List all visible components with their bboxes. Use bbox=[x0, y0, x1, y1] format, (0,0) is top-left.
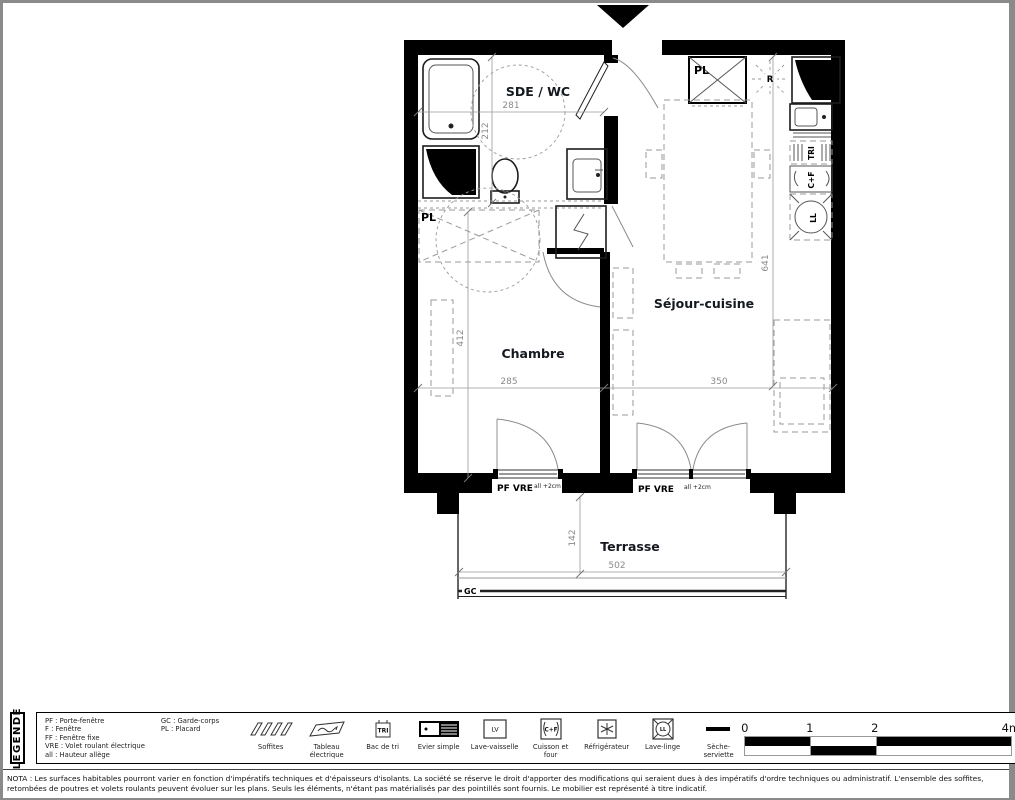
dim-sde-height: 212 bbox=[481, 122, 491, 139]
abbreviation: FF : Fenêtre fixe bbox=[45, 734, 145, 743]
walls bbox=[404, 40, 845, 514]
svg-text:LL: LL bbox=[659, 727, 666, 733]
scale-numbers: 0 1 2 4m bbox=[744, 721, 1015, 736]
sejour-fixtures bbox=[613, 57, 840, 432]
floor-plan-drawing: PF VRE all +2cm PF VRE all +2cm GC bbox=[0, 0, 1015, 710]
fridge-icon bbox=[595, 717, 619, 741]
legend-item: Soffites bbox=[245, 717, 296, 752]
floor-plan-page: PF VRE all +2cm PF VRE all +2cm GC bbox=[0, 0, 1015, 800]
legend-item-label: Evier simple bbox=[418, 744, 460, 752]
legend-item: Tableau électrique bbox=[301, 717, 352, 760]
scale-bar-graphic bbox=[744, 736, 1012, 756]
legend-item-label: Bac de tri bbox=[366, 744, 399, 752]
terrace-wall-stub bbox=[774, 493, 796, 514]
terrace: GC bbox=[458, 514, 786, 599]
guardrail-label: GC bbox=[464, 587, 477, 596]
legend-item-label: Lave-linge bbox=[645, 744, 680, 752]
legend-title: LEGENDE bbox=[12, 707, 23, 769]
soffit-shape bbox=[792, 57, 840, 103]
svg-text:TRI: TRI bbox=[377, 727, 388, 734]
chambre-door-arc bbox=[543, 252, 600, 307]
entrance-door-arc bbox=[613, 58, 658, 108]
dim-terrasse-width: 502 bbox=[608, 561, 625, 571]
washing-machine-icon: LL bbox=[650, 717, 676, 741]
door-sill bbox=[493, 469, 563, 479]
terrace-wall-stub bbox=[437, 493, 459, 514]
soffits-icon bbox=[248, 717, 294, 741]
svg-text:LV: LV bbox=[491, 725, 499, 733]
sde-door-leaf bbox=[576, 62, 608, 119]
legend-item: LV Lave-vaisselle bbox=[469, 717, 520, 752]
nota-text: NOTA : Les surfaces habitables pourront … bbox=[3, 769, 1009, 794]
dim-chambre-width: 285 bbox=[500, 377, 517, 387]
abbreviation: GC : Garde-corps bbox=[161, 717, 219, 726]
abbreviation: all : Hauteur allège bbox=[45, 751, 145, 760]
legend: LEGENDE PF : Porte-fenêtre F : Fenêtre F… bbox=[10, 712, 1006, 764]
door-note: all +2cm bbox=[684, 484, 711, 491]
washer-label: LL bbox=[809, 213, 818, 223]
dim-terrasse-height: 142 bbox=[568, 529, 578, 546]
single-sink-icon bbox=[417, 717, 461, 741]
door-sill bbox=[632, 469, 751, 479]
hand-basin bbox=[567, 149, 607, 199]
towel-dryer-icon bbox=[704, 717, 734, 741]
furniture-dashed bbox=[613, 330, 633, 415]
legend-abbreviations: PF : Porte-fenêtre F : Fenêtre FF : Fenê… bbox=[45, 717, 219, 760]
legend-item-label: Sèche-serviette bbox=[693, 744, 744, 760]
dim-chambre-height: 412 bbox=[456, 329, 466, 346]
legend-item-label: Lave-vaisselle bbox=[471, 744, 519, 752]
cooking-label: C+F bbox=[807, 172, 816, 189]
abbreviation: PF : Porte-fenêtre bbox=[45, 717, 145, 726]
recycling-bin-icon: TRI bbox=[373, 717, 393, 741]
legend-item: C+F Cuisson et four bbox=[525, 717, 576, 760]
dishwasher-icon: LV bbox=[481, 717, 509, 741]
legend-item: Evier simple bbox=[413, 717, 464, 752]
legend-item-label: Cuisson et four bbox=[525, 744, 576, 760]
svg-text:C+F: C+F bbox=[544, 727, 557, 733]
annotations: PL PL R TRI C+F LL bbox=[421, 64, 818, 224]
dimensions: 281 212 412 285 350 641 142 502 bbox=[414, 53, 837, 578]
furniture-dashed bbox=[780, 378, 824, 424]
kitchen-sink bbox=[790, 104, 832, 137]
legend-title-box: LEGENDE bbox=[10, 712, 25, 764]
legend-item: Sèche-serviette bbox=[693, 717, 744, 760]
dim-sejour-height: 641 bbox=[761, 254, 771, 271]
dining-table bbox=[646, 100, 770, 278]
scale-tick: 2 bbox=[871, 721, 878, 735]
furniture-dashed bbox=[431, 300, 453, 396]
door-note: all +2cm bbox=[534, 483, 561, 490]
dim-sde-width: 281 bbox=[502, 101, 519, 111]
closet-label: PL bbox=[694, 64, 709, 77]
entrance-marker-triangle bbox=[597, 5, 649, 28]
recycling-label: TRI bbox=[807, 146, 816, 160]
scale-tick: 4m bbox=[1002, 721, 1015, 735]
legend-items: Soffites Tableau électrique bbox=[245, 717, 744, 760]
dimension-ticks bbox=[414, 53, 837, 578]
scale-tick: 1 bbox=[806, 721, 813, 735]
legend-item-label: Réfrigérateur bbox=[584, 744, 629, 752]
furniture-dashed bbox=[774, 320, 830, 432]
abbreviation-column: GC : Garde-corps PL : Placard bbox=[161, 717, 219, 760]
door-label: PF VRE bbox=[497, 484, 533, 494]
fridge-label: R bbox=[767, 75, 774, 85]
cooktop-oven-icon: C+F bbox=[538, 717, 564, 741]
abbreviation: F : Fenêtre bbox=[45, 725, 145, 734]
legend-item-label: Soffites bbox=[258, 744, 283, 752]
dim-sejour-width: 350 bbox=[710, 377, 727, 387]
legend-item: TRI Bac de tri bbox=[357, 717, 408, 752]
room-label-sde-wc: SDE / WC bbox=[506, 84, 570, 99]
furniture-dashed bbox=[613, 268, 633, 318]
closet-label: PL bbox=[421, 211, 436, 224]
legend-item: Réfrigérateur bbox=[581, 717, 632, 752]
room-label-sejour: Séjour-cuisine bbox=[654, 296, 754, 311]
room-label-chambre: Chambre bbox=[501, 346, 564, 361]
scale-tick: 0 bbox=[741, 721, 748, 735]
abbreviation: VRE : Volet roulant électrique bbox=[45, 742, 145, 751]
electrical-panel-icon bbox=[307, 717, 347, 741]
toilet bbox=[491, 159, 519, 203]
legend-content-box: PF : Porte-fenêtre F : Fenêtre FF : Fenê… bbox=[36, 712, 1015, 764]
soffit-shape bbox=[423, 146, 479, 198]
room-label-terrasse: Terrasse bbox=[600, 539, 659, 554]
wardrobe-closet bbox=[419, 210, 539, 262]
legend-item: LL Lave-linge bbox=[637, 717, 688, 752]
abbreviation-column: PF : Porte-fenêtre F : Fenêtre FF : Fenê… bbox=[45, 717, 145, 760]
abbreviation: PL : Placard bbox=[161, 725, 219, 734]
legend-item-label: Tableau électrique bbox=[301, 744, 352, 760]
scale-bar: 0 1 2 4m bbox=[744, 721, 1015, 756]
door-label: PF VRE bbox=[638, 485, 674, 495]
closet-door-leaf bbox=[612, 206, 633, 247]
chambre-furniture bbox=[419, 188, 600, 396]
